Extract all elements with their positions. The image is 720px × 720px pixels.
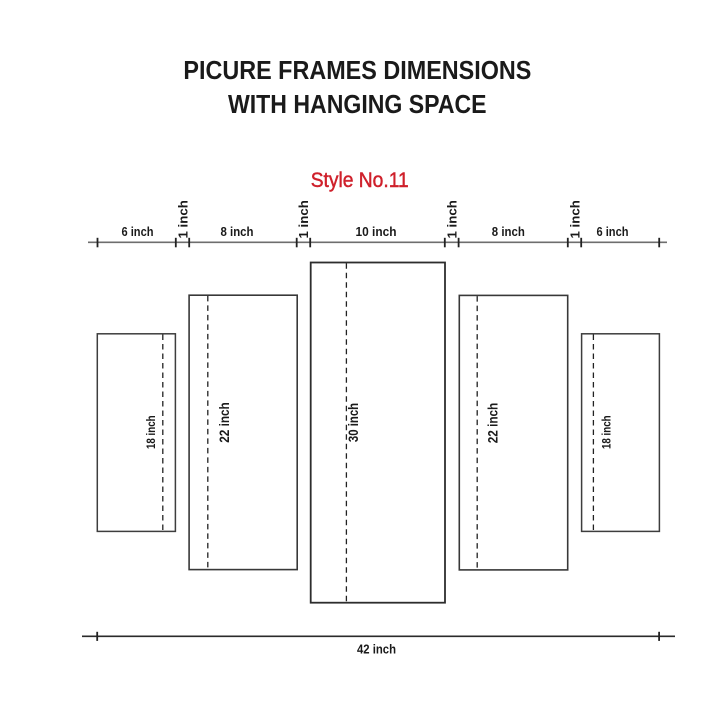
svg-text:18 inch: 18 inch	[600, 415, 614, 449]
svg-text:18 inch: 18 inch	[144, 415, 158, 449]
svg-text:8 inch: 8 inch	[492, 224, 525, 239]
svg-text:1 inch: 1 inch	[567, 200, 582, 238]
svg-text:PICURE FRAMES DIMENSIONS: PICURE FRAMES DIMENSIONS	[183, 57, 531, 85]
svg-text:22 inch: 22 inch	[217, 402, 232, 443]
svg-text:22 inch: 22 inch	[485, 403, 500, 444]
svg-text:10 inch: 10 inch	[356, 224, 397, 239]
svg-text:6 inch: 6 inch	[597, 224, 629, 239]
svg-text:6 inch: 6 inch	[122, 224, 154, 239]
svg-text:1 inch: 1 inch	[175, 200, 190, 238]
svg-text:1 inch: 1 inch	[445, 200, 460, 238]
svg-text:8 inch: 8 inch	[221, 224, 254, 239]
svg-text:42 inch: 42 inch	[357, 641, 396, 656]
svg-text:Style No.11: Style No.11	[311, 169, 409, 192]
svg-text:WITH HANGING SPACE: WITH HANGING SPACE	[228, 91, 487, 119]
svg-text:1 inch: 1 inch	[296, 200, 311, 238]
svg-text:30 inch: 30 inch	[346, 403, 361, 442]
